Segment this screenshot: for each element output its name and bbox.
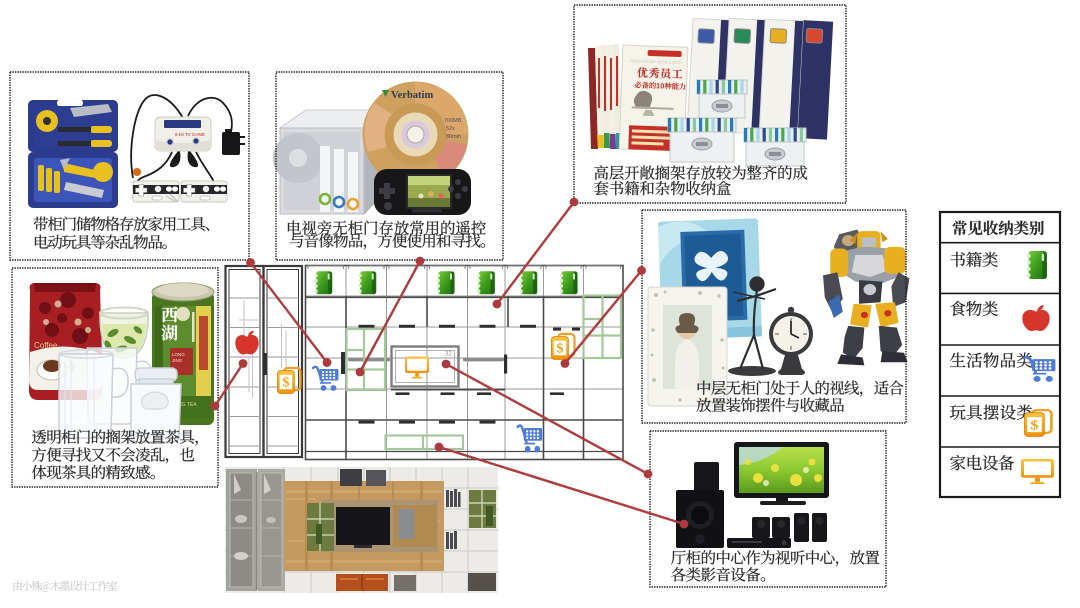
svg-text:32: 32 bbox=[445, 351, 453, 358]
svg-text:80min: 80min bbox=[446, 134, 461, 140]
svg-text:Coffee: Coffee bbox=[34, 341, 58, 350]
svg-text:LONG: LONG bbox=[172, 352, 185, 357]
svg-text:52x: 52x bbox=[446, 126, 455, 132]
svg-text:Verbatim: Verbatim bbox=[391, 90, 433, 101]
svg-text:700MB: 700MB bbox=[444, 118, 462, 124]
svg-text:10: 10 bbox=[656, 81, 665, 90]
svg-text:8-bit TV GAME: 8-bit TV GAME bbox=[175, 132, 205, 137]
svg-text:JING: JING bbox=[172, 358, 183, 363]
